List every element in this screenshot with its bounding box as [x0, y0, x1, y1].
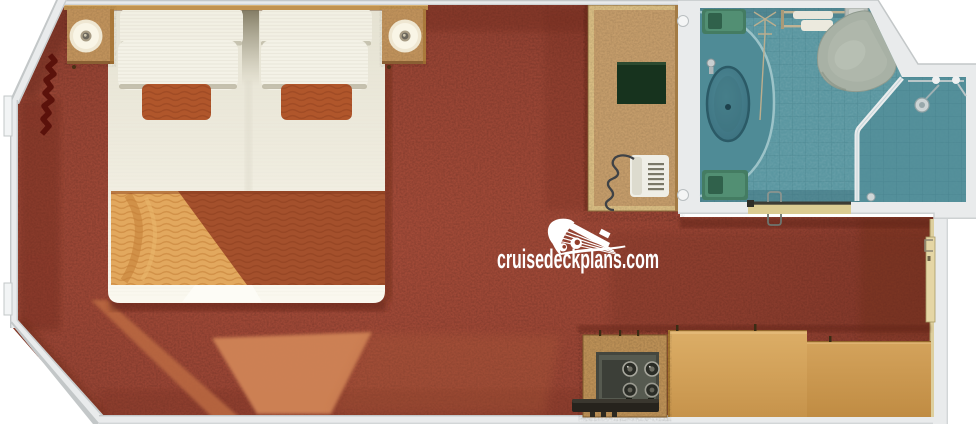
- svg-text:cruisedeckplans.com: cruisedeckplans.com: [497, 244, 659, 274]
